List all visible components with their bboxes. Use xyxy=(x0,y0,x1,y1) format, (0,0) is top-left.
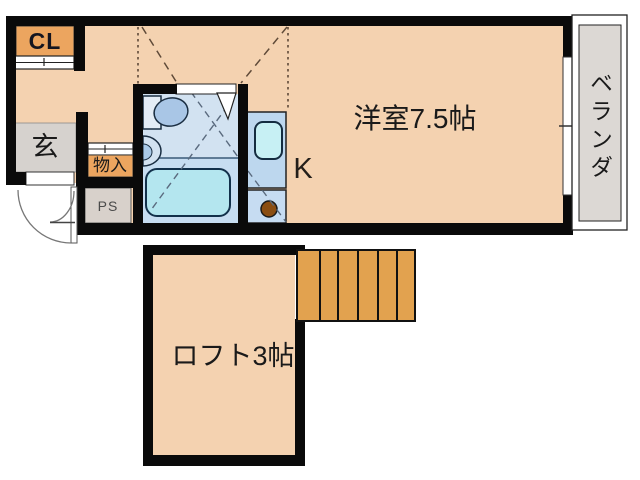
western-room-label: 洋室7.5帖 xyxy=(300,98,530,140)
bathtub-icon xyxy=(146,169,230,216)
floor-plan: CL 玄 物入 PS K 洋室7.5帖 ベランダ ロフト3帖 xyxy=(0,0,640,480)
bathroom xyxy=(143,94,238,223)
closet-label: CL xyxy=(16,26,74,56)
kitchen-label: K xyxy=(287,152,319,186)
gas-burner-icon xyxy=(261,201,277,217)
loft-label: ロフト3帖 xyxy=(158,338,308,374)
kitchen-counter xyxy=(246,112,286,223)
stairs-icon xyxy=(297,250,415,321)
storage-label: 物入 xyxy=(87,154,133,177)
floor-plan-drawing xyxy=(0,0,640,480)
kitchen-sink-icon xyxy=(255,122,282,159)
pipe-space-label: PS xyxy=(85,188,131,223)
balcony-label: ベランダ xyxy=(584,52,614,202)
entrance-step xyxy=(26,172,74,185)
entrance-label: 玄 xyxy=(14,123,76,172)
